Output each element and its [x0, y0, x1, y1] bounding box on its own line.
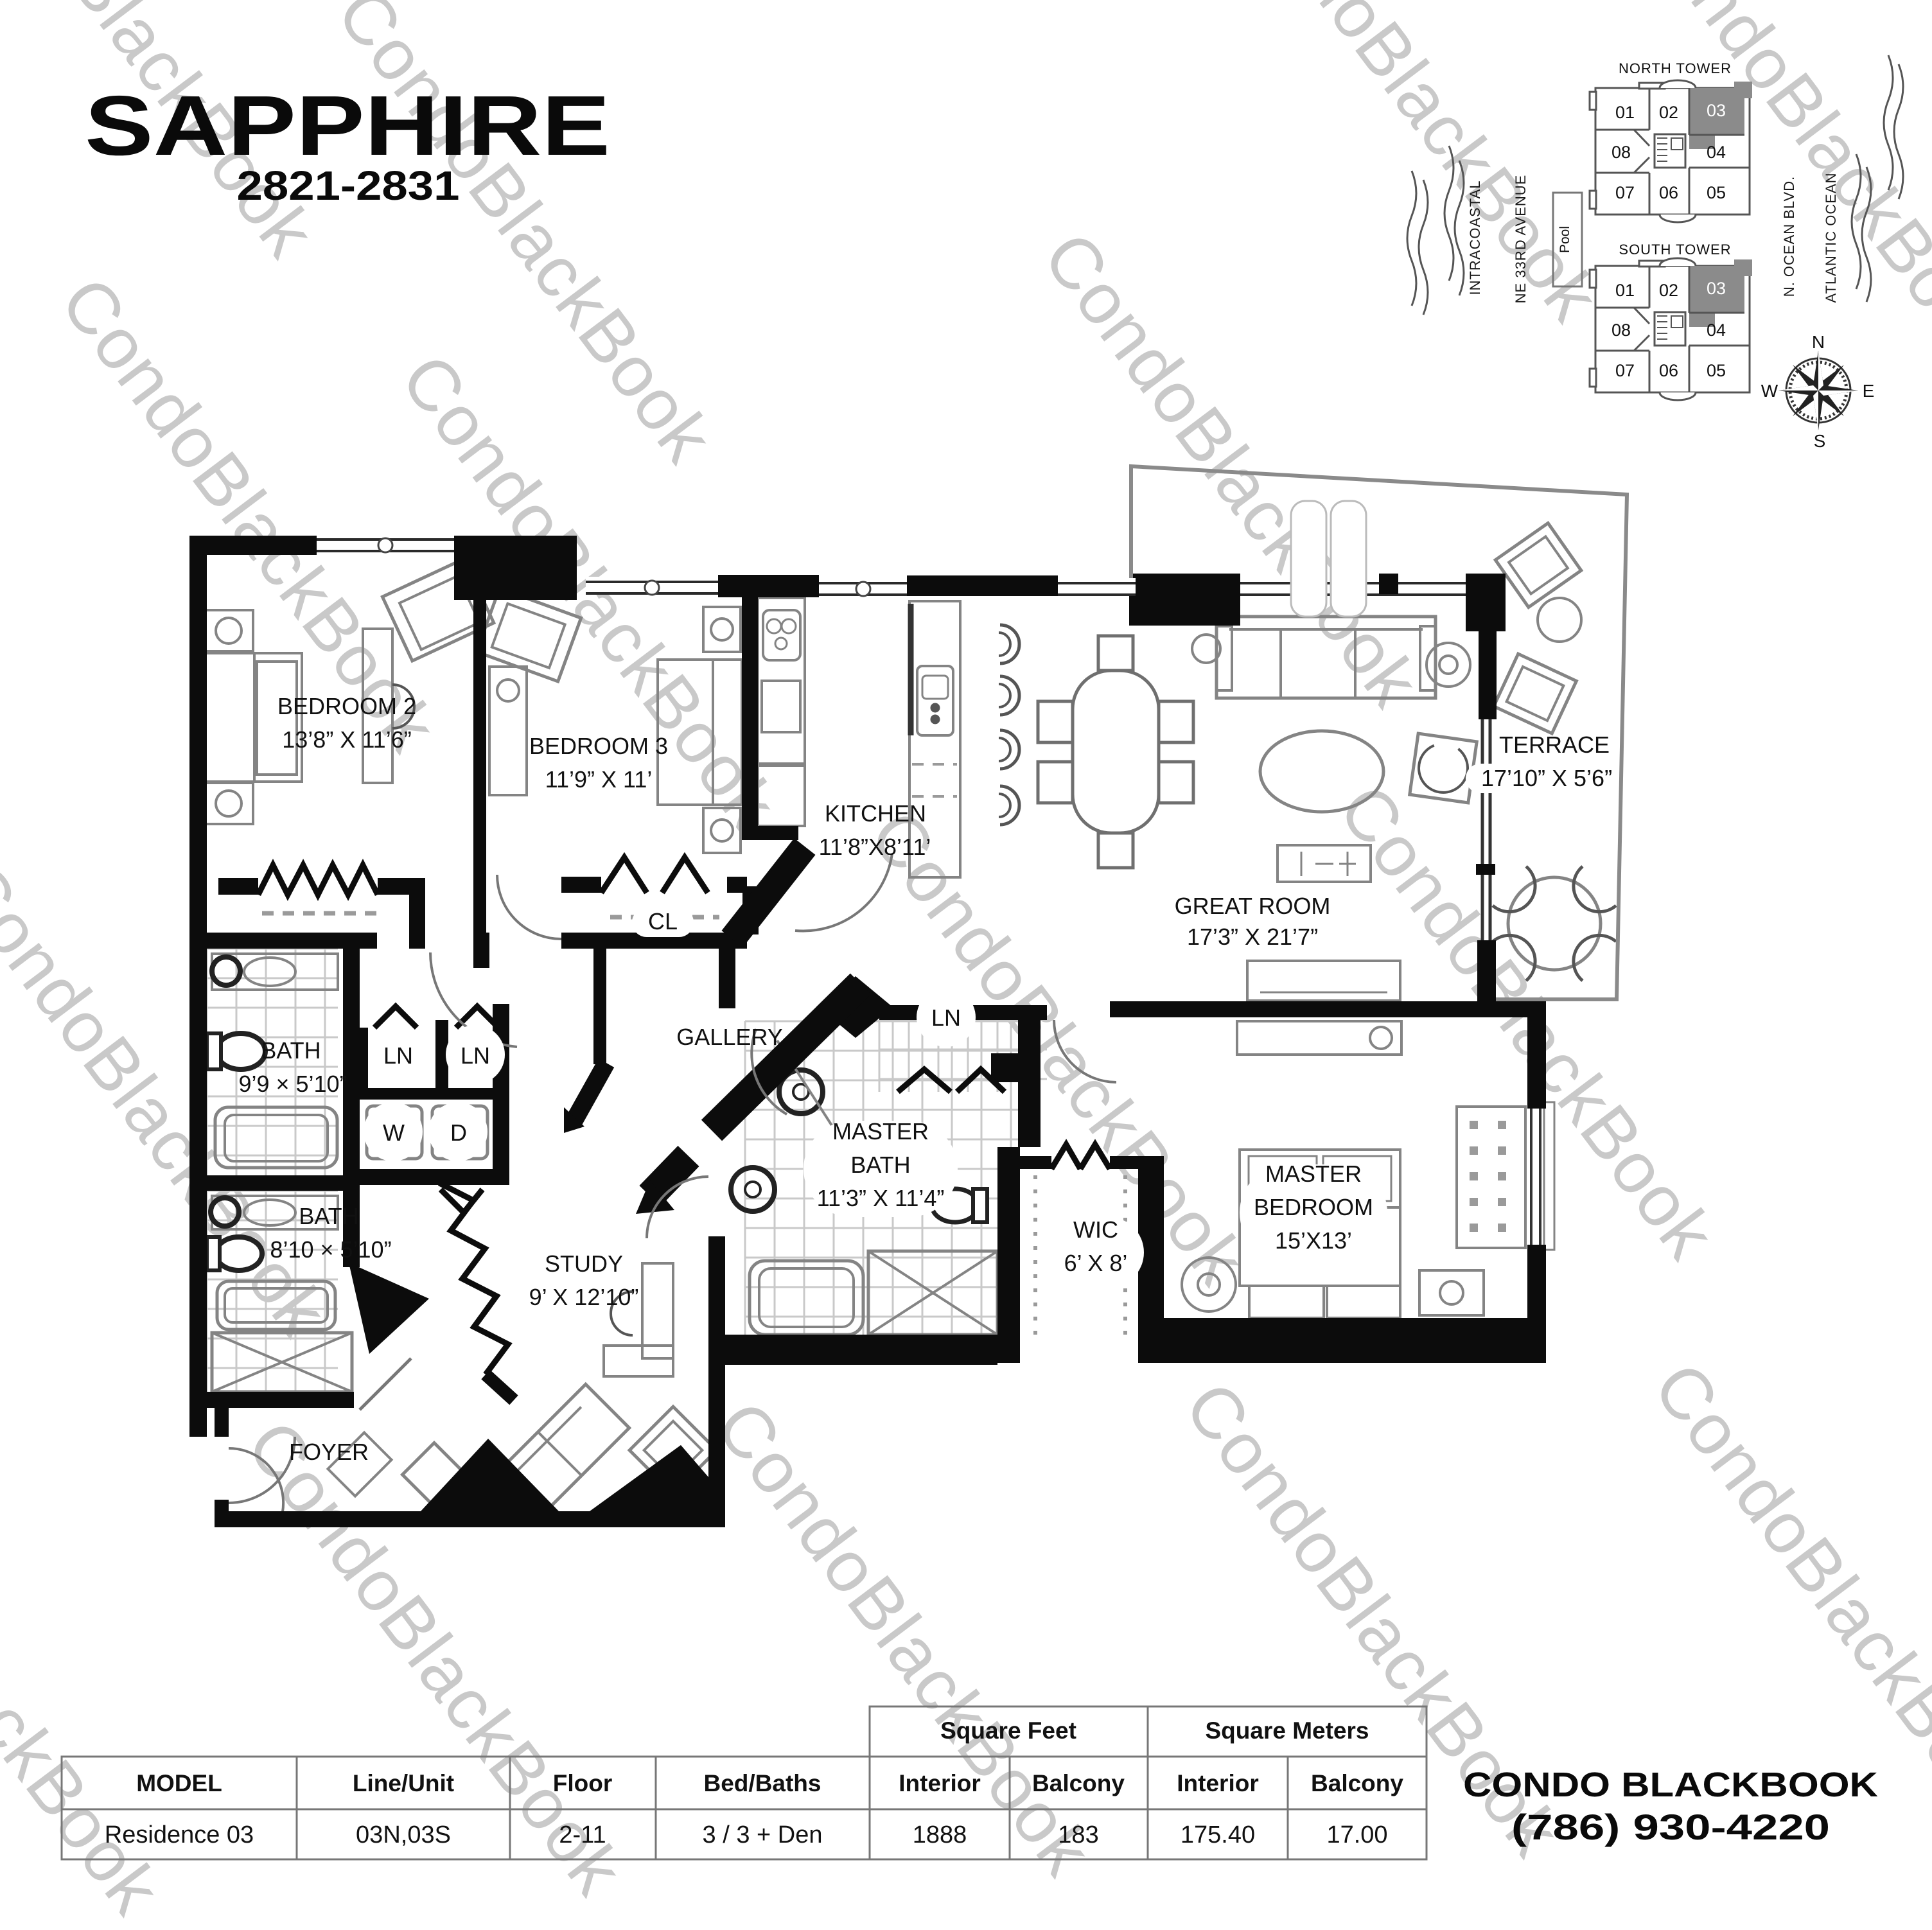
svg-text:13’8” X 11’6”: 13’8” X 11’6” — [282, 726, 411, 753]
svg-text:05: 05 — [1707, 183, 1726, 202]
svg-text:9’ X 12’10”: 9’ X 12’10” — [529, 1284, 639, 1310]
svg-text:08: 08 — [1611, 143, 1631, 162]
svg-text:04: 04 — [1707, 320, 1726, 340]
svg-text:11’9” X 11’: 11’9” X 11’ — [545, 766, 653, 793]
svg-text:07: 07 — [1615, 361, 1635, 380]
svg-text:Balcony: Balcony — [1311, 1770, 1403, 1796]
svg-text:15’X13’: 15’X13’ — [1275, 1227, 1352, 1254]
svg-text:Residence 03: Residence 03 — [105, 1821, 254, 1848]
svg-text:08: 08 — [1611, 320, 1631, 340]
svg-text:GALLERY: GALLERY — [676, 1024, 782, 1050]
svg-text:06: 06 — [1659, 183, 1678, 202]
svg-text:D: D — [450, 1119, 467, 1146]
svg-text:Balcony: Balcony — [1032, 1770, 1125, 1796]
svg-text:N. OCEAN BLVD.: N. OCEAN BLVD. — [1781, 176, 1797, 297]
svg-text:07: 07 — [1615, 183, 1635, 202]
svg-text:BATH: BATH — [850, 1152, 910, 1178]
svg-text:W: W — [1761, 381, 1778, 401]
svg-text:01: 01 — [1615, 281, 1635, 300]
svg-text:LN: LN — [931, 1004, 961, 1031]
svg-text:CL: CL — [648, 908, 678, 934]
svg-text:Line/Unit: Line/Unit — [353, 1770, 454, 1796]
svg-text:STUDY: STUDY — [545, 1250, 623, 1277]
svg-text:E: E — [1863, 381, 1875, 401]
svg-text:LN: LN — [383, 1042, 413, 1069]
svg-text:Square Feet: Square Feet — [940, 1717, 1076, 1744]
svg-text:W: W — [383, 1119, 405, 1146]
svg-text:CONDO BLACKBOOK: CONDO BLACKBOOK — [1463, 1766, 1878, 1804]
svg-text:11’8”X8’11’: 11’8”X8’11’ — [819, 834, 931, 860]
svg-text:17’10” X 5’6”: 17’10” X 5’6” — [1481, 765, 1612, 791]
svg-text:01: 01 — [1615, 103, 1635, 122]
svg-text:9’9 × 5’10”: 9’9 × 5’10” — [238, 1071, 347, 1097]
svg-text:183: 183 — [1058, 1821, 1098, 1848]
svg-text:06: 06 — [1659, 361, 1678, 380]
svg-text:BEDROOM 2: BEDROOM 2 — [277, 693, 416, 719]
svg-text:Floor: Floor — [553, 1770, 612, 1796]
svg-text:LN: LN — [461, 1042, 490, 1069]
svg-text:175.40: 175.40 — [1181, 1821, 1255, 1848]
svg-text:03N,03S: 03N,03S — [356, 1821, 451, 1848]
svg-text:3 / 3 + Den: 3 / 3 + Den — [703, 1821, 823, 1848]
svg-text:05: 05 — [1707, 361, 1726, 380]
svg-text:03: 03 — [1707, 279, 1726, 298]
svg-text:8’10 × 5’10”: 8’10 × 5’10” — [270, 1236, 391, 1263]
svg-text:N: N — [1812, 332, 1825, 352]
svg-text:BEDROOM 3: BEDROOM 3 — [529, 733, 668, 759]
svg-text:SAPPHIRE: SAPPHIRE — [85, 78, 610, 173]
svg-text:MASTER: MASTER — [832, 1118, 929, 1145]
svg-text:NORTH TOWER: NORTH TOWER — [1619, 60, 1732, 76]
svg-text:Interior: Interior — [899, 1770, 980, 1796]
svg-text:17.00: 17.00 — [1326, 1821, 1387, 1848]
svg-text:BATH: BATH — [261, 1037, 321, 1064]
svg-text:BATH: BATH — [299, 1203, 358, 1229]
svg-text:1888: 1888 — [913, 1821, 967, 1848]
svg-text:INTRACOASTAL: INTRACOASTAL — [1467, 180, 1483, 295]
svg-text:02: 02 — [1659, 103, 1678, 122]
svg-text:11’3” X 11’4”: 11’3” X 11’4” — [817, 1185, 945, 1211]
svg-text:WIC: WIC — [1073, 1216, 1118, 1243]
svg-text:6’ X 8’: 6’ X 8’ — [1064, 1250, 1128, 1276]
svg-text:02: 02 — [1659, 281, 1678, 300]
svg-text:S: S — [1814, 431, 1826, 451]
svg-text:(786) 930-4220: (786) 930-4220 — [1511, 1807, 1830, 1847]
svg-text:SOUTH TOWER: SOUTH TOWER — [1619, 241, 1731, 258]
svg-text:KITCHEN: KITCHEN — [825, 800, 926, 827]
svg-text:NE 33RD AVENUE: NE 33RD AVENUE — [1513, 175, 1529, 304]
svg-text:Pool: Pool — [1558, 226, 1572, 253]
svg-text:MODEL: MODEL — [136, 1770, 222, 1796]
svg-text:MASTER: MASTER — [1265, 1161, 1362, 1187]
svg-text:ATLANTIC OCEAN: ATLANTIC OCEAN — [1823, 172, 1839, 303]
svg-text:17’3” X 21’7”: 17’3” X 21’7” — [1187, 924, 1318, 950]
svg-text:03: 03 — [1707, 101, 1726, 120]
svg-text:Square Meters: Square Meters — [1206, 1717, 1369, 1744]
svg-text:GREAT ROOM: GREAT ROOM — [1175, 893, 1331, 919]
svg-text:TERRACE: TERRACE — [1499, 732, 1610, 758]
svg-text:Bed/Baths: Bed/Baths — [704, 1770, 821, 1796]
svg-text:04: 04 — [1707, 143, 1726, 162]
svg-text:Interior: Interior — [1177, 1770, 1258, 1796]
svg-text:BEDROOM: BEDROOM — [1254, 1194, 1373, 1220]
svg-text:2-11: 2-11 — [559, 1821, 606, 1848]
svg-text:FOYER: FOYER — [289, 1439, 369, 1465]
svg-text:2821-2831: 2821-2831 — [237, 162, 460, 209]
